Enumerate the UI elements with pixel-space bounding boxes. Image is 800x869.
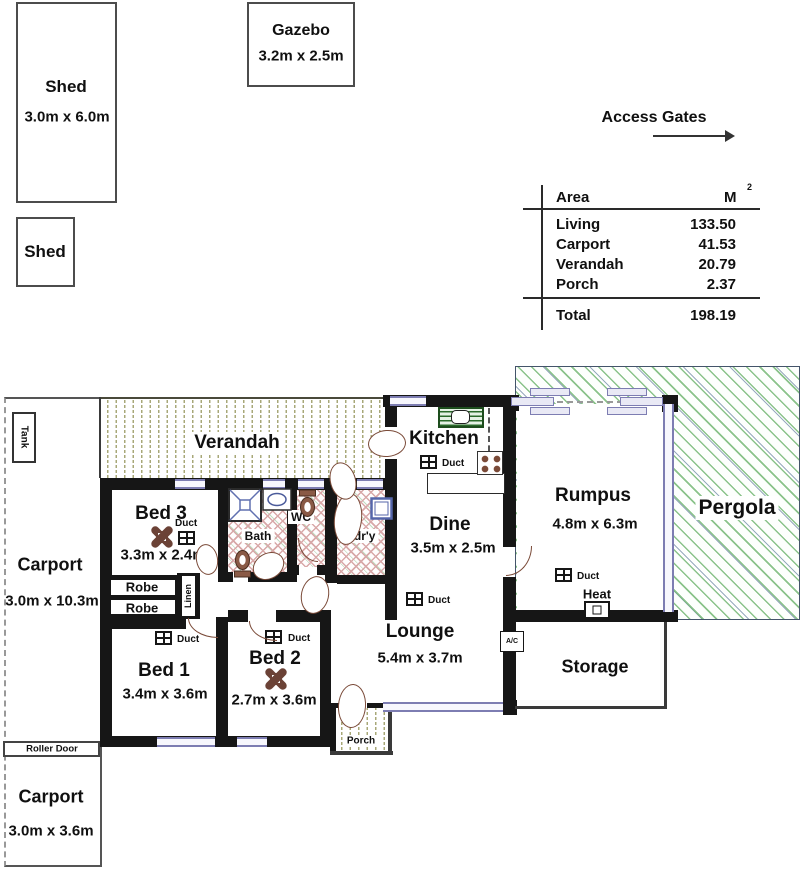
door-bed2 [249, 621, 277, 641]
window-kitchen [390, 396, 426, 406]
heat-label: Heat [583, 587, 611, 602]
wall-bath-bottom-a [218, 572, 233, 582]
table-total-label: Total [556, 307, 591, 324]
roller-door-label: Roller Door [26, 744, 78, 755]
porch-label: Porch [344, 736, 378, 747]
ac-label: A/C [506, 638, 518, 645]
duct-icon [555, 568, 572, 582]
door-bed3 [193, 542, 220, 576]
duct-label: Duct [177, 634, 199, 645]
kitchen-bench [427, 473, 505, 494]
laundry-trough-icon [370, 497, 393, 520]
duct-icon [420, 455, 437, 469]
verandah-label: Verandah [191, 432, 283, 454]
porch-wall-left [330, 708, 336, 755]
window-bed2 [237, 737, 267, 747]
access-gates-arrowhead [725, 130, 735, 142]
gazebo [247, 2, 355, 87]
wall-bed2-top-a [228, 610, 248, 622]
table-row-name: Carport [556, 236, 610, 253]
carport-side-label: Carport [17, 555, 82, 576]
table-row-name: Verandah [556, 256, 624, 273]
wall-wc-bottom-a [287, 565, 299, 575]
wall-wc-bottom-b [317, 565, 337, 575]
window-rumpus-east [663, 404, 674, 612]
shed-small-label: Shed [24, 242, 66, 262]
gazebo-dims: 3.2m x 2.5m [258, 48, 343, 65]
wall-mid-upper [503, 395, 516, 547]
duct-label: Duct [288, 633, 310, 644]
window-bed1 [157, 737, 215, 747]
window-laundry [357, 479, 383, 489]
access-gates-arrow [653, 135, 727, 137]
porch-wall-right [388, 708, 392, 755]
dine-dims: 3.5m x 2.5m [410, 540, 495, 557]
bed1-label: Bed 1 [138, 660, 190, 682]
tank-label: Tank [19, 426, 30, 449]
wall-bed3-right [218, 488, 228, 582]
duct-label: Duct [577, 571, 599, 582]
bed2-dims: 2.7m x 3.6m [231, 692, 316, 709]
duct-icon [406, 592, 423, 606]
table-row-name: Living [556, 216, 600, 233]
bath-label: Bath [242, 529, 275, 543]
table-hline-bottom [523, 297, 760, 299]
duct-icon [155, 631, 172, 645]
table-col-area: Area [556, 189, 589, 206]
duct-label: Duct [442, 458, 464, 469]
window-wc [298, 479, 324, 489]
bed2-label: Bed 2 [249, 648, 301, 670]
carport-front-dims: 3.0m x 3.6m [8, 823, 93, 840]
table-row-value: 133.50 [650, 216, 736, 233]
carport-side-dims: 3.0m x 10.3m [5, 593, 98, 610]
sliding-door-panel [607, 388, 647, 396]
carport-front-label: Carport [18, 787, 83, 808]
shed-large-label: Shed [45, 77, 87, 97]
duct-icon [178, 531, 195, 545]
table-col-unit: M [724, 189, 737, 206]
rumpus-dims: 4.8m x 6.3m [552, 516, 637, 533]
carport-verandah-divider [99, 397, 101, 478]
stove-icon [477, 451, 503, 475]
sliding-door-panel [530, 388, 570, 396]
toilet-icon [298, 489, 317, 517]
gazebo-label: Gazebo [272, 22, 330, 40]
toilet-icon [233, 550, 252, 578]
floor-plan: Shed 3.0m x 6.0m Gazebo 3.2m x 2.5m Shed… [0, 0, 800, 869]
sliding-door-panel [511, 397, 554, 406]
sliding-door-panel [530, 407, 570, 415]
ac-unit: A/C [500, 631, 524, 652]
sliding-door-panel [607, 407, 647, 415]
window-lounge [383, 702, 503, 712]
table-row-value: 20.79 [650, 256, 736, 273]
table-row-value: 41.53 [650, 236, 736, 253]
table-row-value: 2.37 [650, 276, 736, 293]
kitchen-label: Kitchen [409, 428, 479, 450]
duct-label: Duct [428, 595, 450, 606]
dine-label: Dine [429, 514, 470, 536]
table-col-unit-sup: 2 [747, 182, 752, 192]
wall-front [100, 736, 330, 747]
lounge-label: Lounge [386, 621, 455, 643]
storage-wall-right [664, 622, 667, 708]
table-total-value: 198.19 [650, 307, 736, 324]
window-bed3 [175, 479, 205, 489]
access-gates-label: Access Gates [602, 109, 707, 127]
wall-laundry-bottom [337, 575, 393, 584]
robe-1-label: Robe [126, 580, 159, 595]
bed1-dims: 3.4m x 3.6m [122, 686, 207, 703]
shed-large-dims: 3.0m x 6.0m [24, 109, 109, 126]
robe-2-label: Robe [126, 601, 159, 616]
storage-label: Storage [561, 657, 628, 678]
porch-wall-bottom [330, 751, 393, 755]
sliding-door-panel [620, 397, 663, 406]
shed-large [16, 2, 117, 203]
table-vline [541, 185, 543, 330]
door-kitchen [367, 429, 407, 459]
storage-wall-bottom [515, 706, 667, 709]
bed3-label: Bed 3 [135, 503, 187, 525]
lounge-dims: 5.4m x 3.7m [377, 650, 462, 667]
kitchen-sink-bowl [451, 410, 470, 424]
vanity-basin-icon [262, 488, 292, 511]
rumpus-label: Rumpus [555, 485, 631, 507]
table-hline-top [523, 208, 760, 210]
linen-label: Linen [183, 584, 193, 608]
bed3-dims: 3.3m x 2.4m [120, 547, 205, 564]
heat-icon [584, 601, 610, 619]
pergola-label: Pergola [695, 496, 778, 520]
table-row-name: Porch [556, 276, 599, 293]
shower-icon [228, 488, 262, 522]
wall-kitchen-left-lower [385, 459, 397, 620]
